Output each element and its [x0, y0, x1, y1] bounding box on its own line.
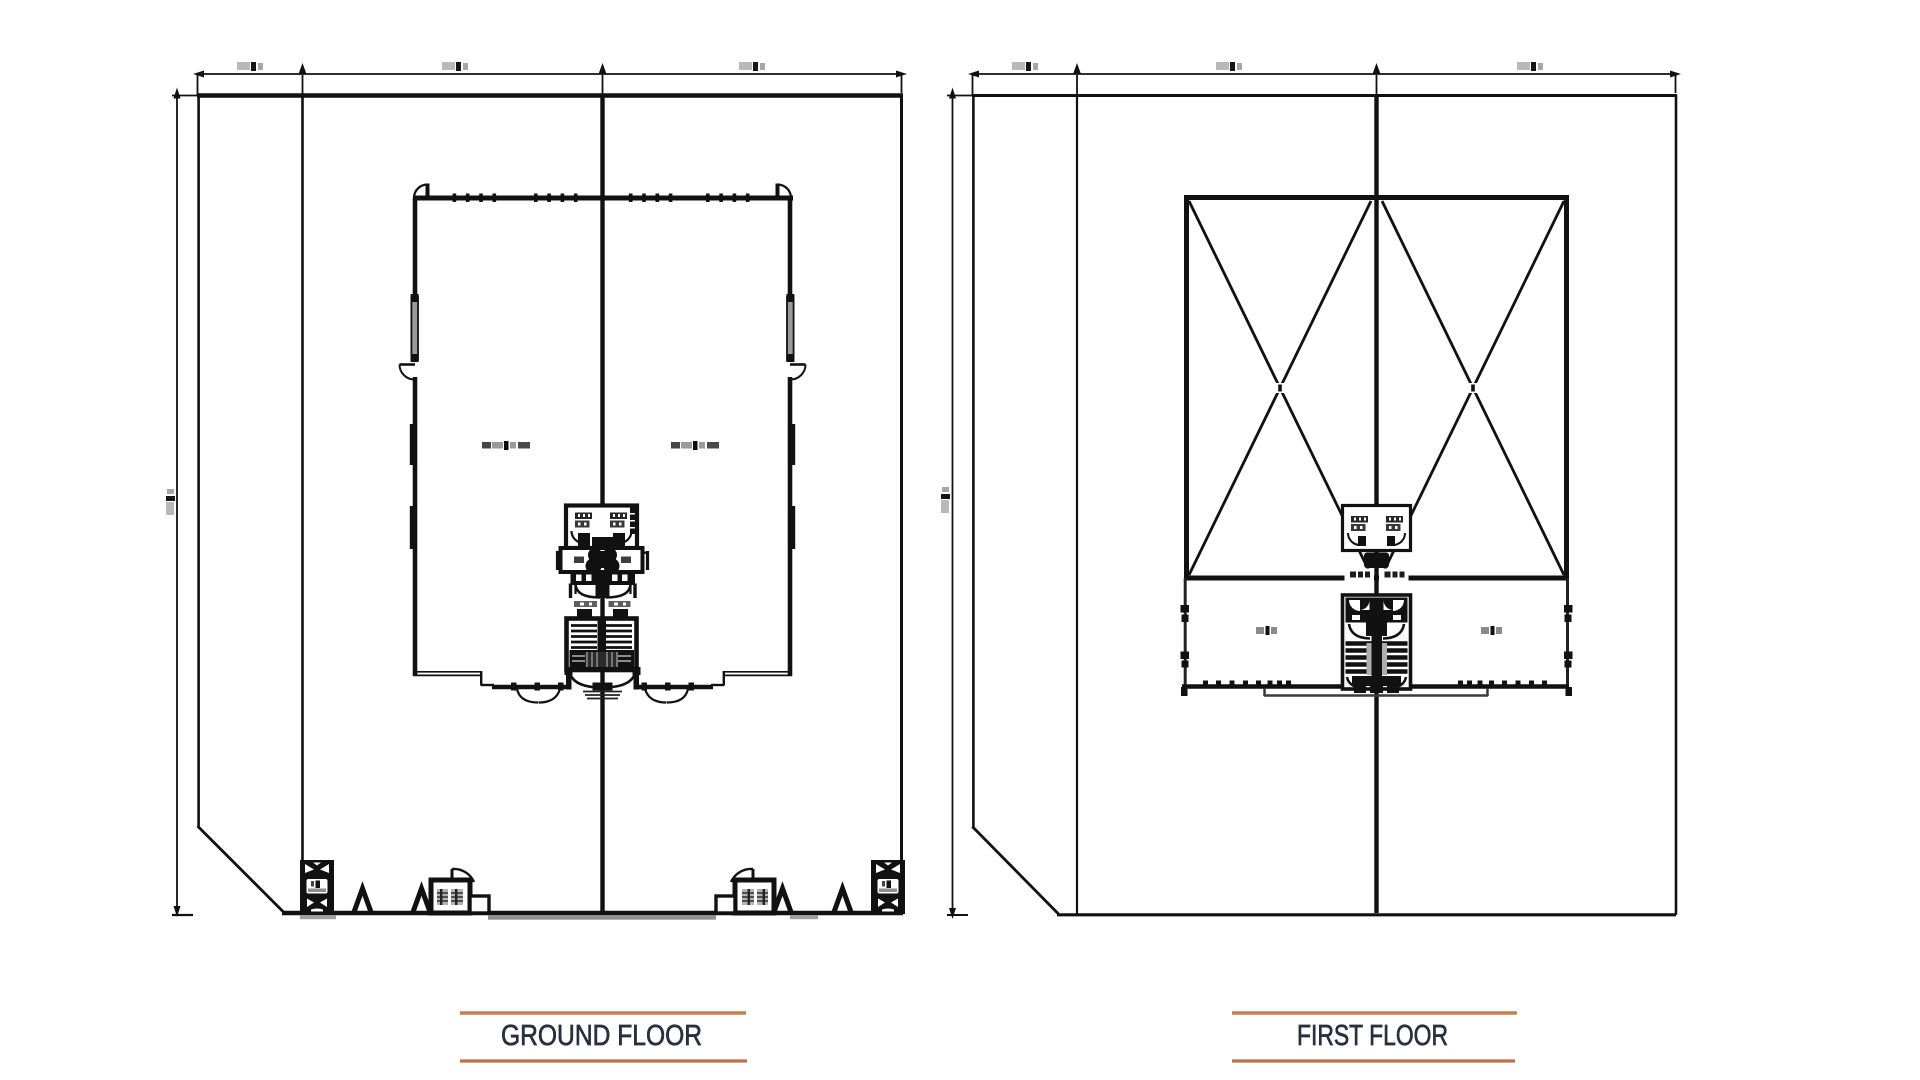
svg-text:FIRST FLOOR: FIRST FLOOR: [1297, 1020, 1448, 1052]
svg-text:GROUND FLOOR: GROUND FLOOR: [501, 1020, 702, 1052]
